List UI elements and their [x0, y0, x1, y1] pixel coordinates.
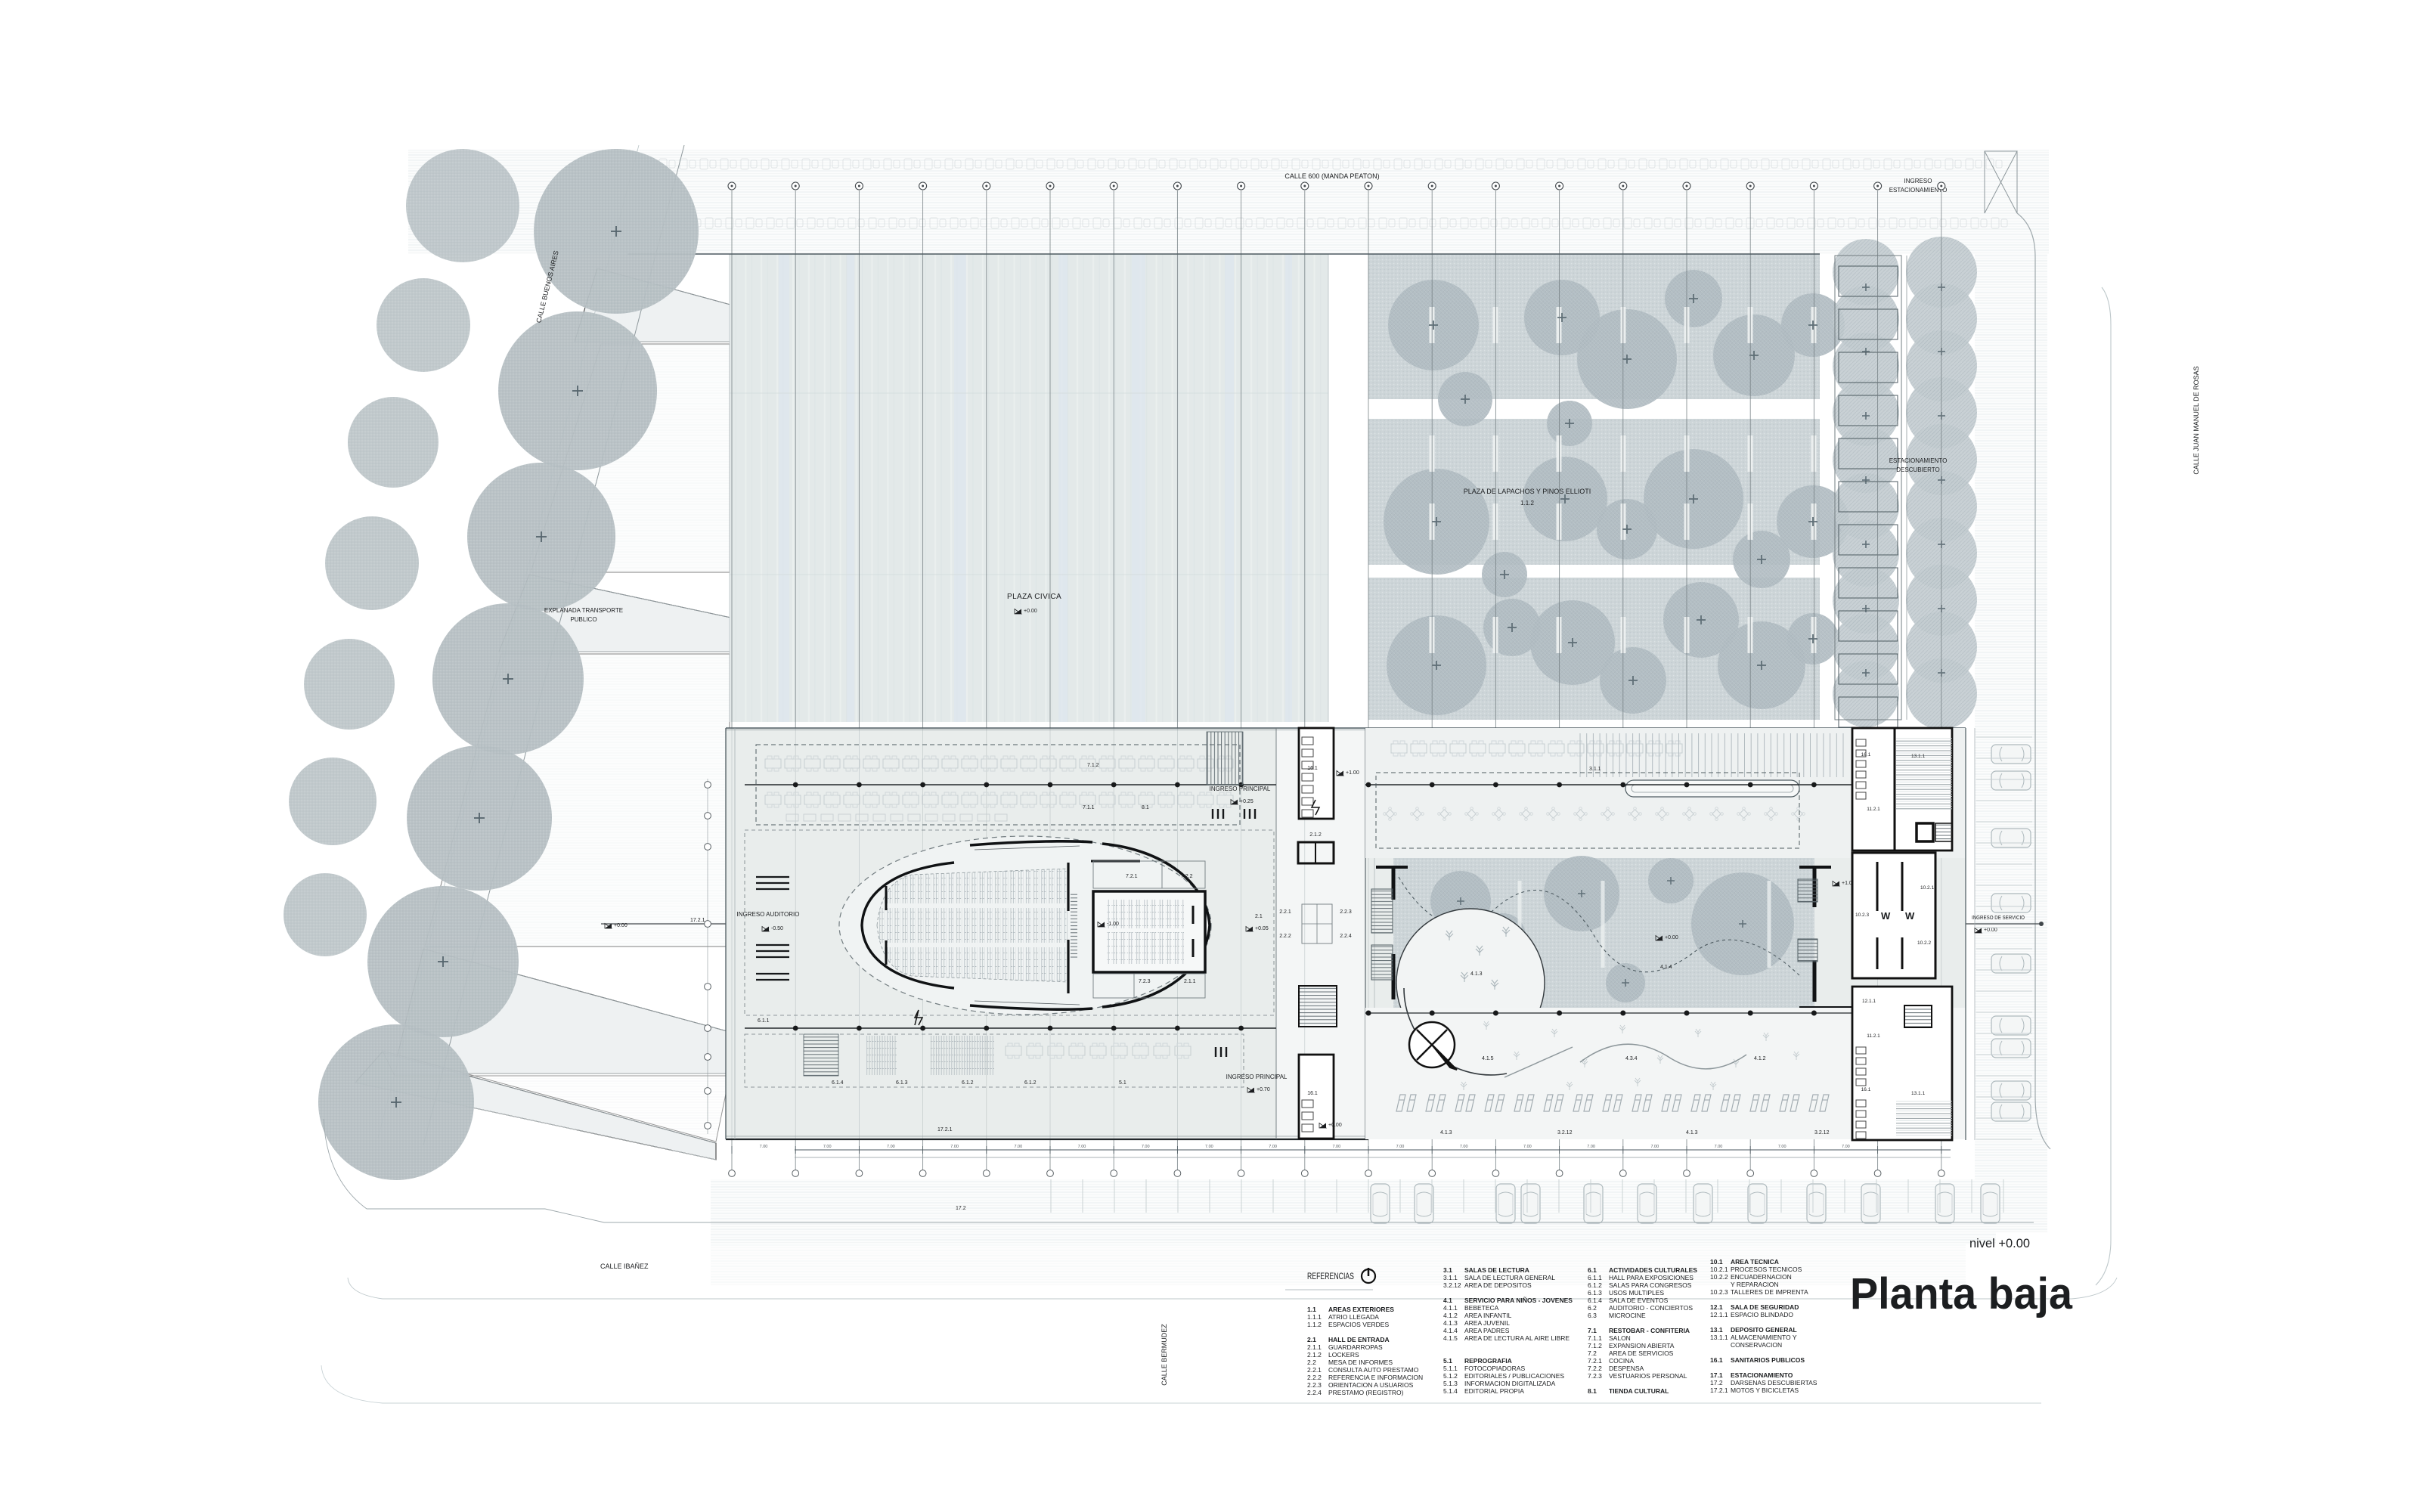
svg-text:16.1: 16.1	[1307, 766, 1318, 771]
svg-text:INGRESO: INGRESO	[1904, 178, 1932, 184]
svg-text:13.1.1: 13.1.1	[1911, 754, 1925, 759]
svg-text:AREAS EXTERIORES: AREAS EXTERIORES	[1328, 1306, 1394, 1313]
svg-text:CONSERVACION: CONSERVACION	[1731, 1341, 1782, 1349]
svg-text:2.1.1: 2.1.1	[1307, 1343, 1322, 1351]
svg-text:4.1.4: 4.1.4	[1660, 965, 1672, 970]
svg-text:6.2: 6.2	[1588, 1304, 1597, 1312]
svg-text:7.00: 7.00	[1142, 1145, 1150, 1149]
svg-text:DEPOSITO GENERAL: DEPOSITO GENERAL	[1731, 1326, 1797, 1334]
svg-text:16.1: 16.1	[1710, 1356, 1723, 1364]
svg-text:ORIENTACION A USUARIOS: ORIENTACION A USUARIOS	[1328, 1381, 1414, 1389]
svg-text:7.2: 7.2	[1588, 1349, 1597, 1357]
svg-text:ESPACIO BLINDADO: ESPACIO BLINDADO	[1731, 1311, 1793, 1318]
svg-text:SANITARIOS PUBLICOS: SANITARIOS PUBLICOS	[1731, 1356, 1805, 1364]
svg-text:4.1.3: 4.1.3	[1443, 1319, 1458, 1327]
svg-text:CALLE JUAN MANUEL DE ROSAS: CALLE JUAN MANUEL DE ROSAS	[2192, 366, 2200, 474]
svg-text:7.00: 7.00	[1078, 1145, 1086, 1149]
svg-text:17.2.1: 17.2.1	[937, 1127, 953, 1132]
svg-text:17.2.1: 17.2.1	[1710, 1387, 1728, 1394]
svg-text:1.1: 1.1	[1307, 1306, 1316, 1313]
svg-text:INGRESO PRINCIPAL: INGRESO PRINCIPAL	[1210, 785, 1271, 792]
svg-text:2.1.2: 2.1.2	[1309, 832, 1322, 838]
svg-text:2.2.4: 2.2.4	[1340, 934, 1352, 939]
svg-text:17.2.1: 17.2.1	[690, 918, 705, 923]
svg-text:+0.00: +0.00	[1024, 609, 1037, 614]
svg-text:7.1.1: 7.1.1	[1588, 1334, 1602, 1342]
svg-text:7.00: 7.00	[1460, 1145, 1468, 1149]
svg-text:1.1.2: 1.1.2	[1307, 1321, 1322, 1328]
svg-text:5.1.3: 5.1.3	[1443, 1380, 1458, 1387]
svg-text:12.1: 12.1	[1710, 1303, 1723, 1311]
svg-text:VESTUARIOS PERSONAL: VESTUARIOS PERSONAL	[1609, 1372, 1687, 1380]
svg-text:SALA DE LECTURA GENERAL: SALA DE LECTURA GENERAL	[1464, 1274, 1555, 1281]
svg-text:10.2.2: 10.2.2	[1917, 940, 1931, 946]
svg-text:5.1.4: 5.1.4	[1443, 1387, 1458, 1395]
svg-text:W: W	[1905, 910, 1915, 922]
svg-text:INGRESO DE SERVICIO: INGRESO DE SERVICIO	[1972, 916, 2025, 921]
svg-text:2.1.2: 2.1.2	[1307, 1351, 1322, 1359]
svg-text:7.1.2: 7.1.2	[1087, 763, 1099, 768]
svg-text:7.00: 7.00	[1523, 1145, 1532, 1149]
svg-text:10.1: 10.1	[1710, 1258, 1723, 1266]
svg-text:7.00: 7.00	[887, 1145, 895, 1149]
svg-text:USOS MULTIPLES: USOS MULTIPLES	[1609, 1289, 1664, 1297]
svg-text:13.1.1: 13.1.1	[1710, 1334, 1728, 1341]
svg-text:DESPENSA: DESPENSA	[1609, 1365, 1644, 1372]
svg-text:EDITORIAL PROPIA: EDITORIAL PROPIA	[1464, 1387, 1524, 1395]
svg-text:17.1: 17.1	[1710, 1371, 1723, 1379]
svg-text:7.2.3: 7.2.3	[1139, 979, 1151, 984]
svg-text:5.1: 5.1	[1119, 1080, 1126, 1086]
svg-text:INGRESO AUDITORIO: INGRESO AUDITORIO	[737, 911, 800, 918]
svg-text:7.00: 7.00	[1332, 1145, 1340, 1149]
svg-text:W: W	[1881, 910, 1891, 922]
svg-text:17.2: 17.2	[1710, 1379, 1723, 1387]
svg-text:ENCUADERNACION: ENCUADERNACION	[1731, 1273, 1792, 1281]
svg-text:4.1.2: 4.1.2	[1754, 1056, 1766, 1061]
svg-text:AUDITORIO - CONCIERTOS: AUDITORIO - CONCIERTOS	[1609, 1304, 1693, 1312]
svg-text:REFERENCIAS: REFERENCIAS	[1307, 1271, 1354, 1281]
svg-text:7.00: 7.00	[760, 1145, 768, 1149]
svg-text:17.2: 17.2	[956, 1206, 966, 1211]
svg-text:AREA JUVENIL: AREA JUVENIL	[1464, 1319, 1510, 1327]
svg-text:1.1.2: 1.1.2	[1520, 500, 1534, 507]
svg-text:3.2.12: 3.2.12	[1443, 1281, 1461, 1289]
svg-text:CALLE BERMUDEZ: CALLE BERMUDEZ	[1161, 1324, 1168, 1386]
svg-text:10.2.3: 10.2.3	[1710, 1288, 1728, 1296]
svg-text:3.1.1: 3.1.1	[1589, 767, 1601, 772]
svg-text:3.2.12: 3.2.12	[1814, 1130, 1830, 1136]
svg-text:MOTOS Y BICICLETAS: MOTOS Y BICICLETAS	[1731, 1387, 1799, 1394]
svg-text:13.1.1: 13.1.1	[1911, 1091, 1925, 1096]
svg-text:16.1: 16.1	[1307, 1091, 1318, 1096]
svg-text:+1.00: +1.00	[1346, 770, 1359, 776]
svg-text:PRESTAMO (REGISTRO): PRESTAMO (REGISTRO)	[1328, 1389, 1404, 1396]
svg-text:6.1.2: 6.1.2	[962, 1080, 974, 1086]
svg-text:4.1.2: 4.1.2	[1443, 1312, 1458, 1319]
svg-text:+0.25: +0.25	[1240, 799, 1253, 804]
svg-text:6.1: 6.1	[1588, 1266, 1597, 1274]
svg-text:AREA DE DEPOSITOS: AREA DE DEPOSITOS	[1464, 1281, 1532, 1289]
svg-text:6.1.3: 6.1.3	[1588, 1289, 1602, 1297]
svg-text:AREA DE LECTURA AL AIRE LIBRE: AREA DE LECTURA AL AIRE LIBRE	[1464, 1334, 1570, 1342]
svg-text:MICROCINE: MICROCINE	[1609, 1312, 1646, 1319]
svg-text:6.1.1: 6.1.1	[1588, 1274, 1602, 1281]
svg-text:COCINA: COCINA	[1609, 1357, 1634, 1365]
svg-text:AREA PADRES: AREA PADRES	[1464, 1327, 1510, 1334]
svg-text:7.1.1: 7.1.1	[1083, 805, 1095, 810]
svg-text:AREA INFANTIL: AREA INFANTIL	[1464, 1312, 1512, 1319]
svg-text:INFORMACION DIGITALIZADA: INFORMACION DIGITALIZADA	[1464, 1380, 1556, 1387]
svg-text:2.1: 2.1	[1255, 914, 1263, 919]
svg-text:MESA DE INFORMES: MESA DE INFORMES	[1328, 1359, 1393, 1366]
svg-text:4.1.5: 4.1.5	[1482, 1056, 1494, 1061]
svg-text:4.1.3: 4.1.3	[1686, 1130, 1698, 1136]
svg-text:ACTIVIDADES CULTURALES: ACTIVIDADES CULTURALES	[1609, 1266, 1697, 1274]
svg-text:HALL PARA EXPOSICIONES: HALL PARA EXPOSICIONES	[1609, 1274, 1694, 1281]
svg-text:7.2.3: 7.2.3	[1588, 1372, 1602, 1380]
svg-text:7.2.2: 7.2.2	[1181, 874, 1193, 879]
svg-text:16.1: 16.1	[1861, 1087, 1871, 1092]
svg-text:6.1.2: 6.1.2	[1588, 1281, 1602, 1289]
svg-text:SALON: SALON	[1609, 1334, 1631, 1342]
svg-text:7.2.1: 7.2.1	[1588, 1357, 1602, 1365]
svg-text:3.1: 3.1	[1443, 1266, 1452, 1274]
svg-text:7.00: 7.00	[950, 1145, 959, 1149]
svg-text:ESTACIONAMIENTO: ESTACIONAMIENTO	[1731, 1371, 1793, 1379]
svg-text:2.1.1: 2.1.1	[1184, 979, 1196, 984]
svg-text:TIENDA CULTURAL: TIENDA CULTURAL	[1609, 1387, 1669, 1395]
svg-text:4.3.4: 4.3.4	[1625, 1056, 1638, 1061]
svg-text:4.1.4: 4.1.4	[1443, 1327, 1458, 1334]
svg-text:2.2.3: 2.2.3	[1307, 1381, 1322, 1389]
svg-text:7.00: 7.00	[1778, 1145, 1786, 1149]
svg-text:6.1.2: 6.1.2	[1024, 1080, 1037, 1086]
svg-text:10.2.1: 10.2.1	[1710, 1266, 1728, 1273]
svg-text:AREA TECNICA: AREA TECNICA	[1731, 1258, 1779, 1266]
svg-text:6.1.3: 6.1.3	[896, 1080, 908, 1086]
svg-text:8.1: 8.1	[1588, 1387, 1597, 1395]
svg-text:AREA DE SERVICIOS: AREA DE SERVICIOS	[1609, 1349, 1674, 1357]
svg-text:10.2.1: 10.2.1	[1920, 885, 1934, 891]
svg-text:2.2.2: 2.2.2	[1307, 1374, 1322, 1381]
svg-text:12.1.1: 12.1.1	[1710, 1311, 1728, 1318]
svg-text:2.2.3: 2.2.3	[1340, 909, 1352, 915]
svg-text:+0.00: +0.00	[1328, 1123, 1342, 1128]
svg-text:SALAS PARA CONGRESOS: SALAS PARA CONGRESOS	[1609, 1281, 1692, 1289]
svg-text:7.00: 7.00	[1715, 1145, 1723, 1149]
svg-text:PLAZA DE LAPACHOS Y PINOS ELLI: PLAZA DE LAPACHOS Y PINOS ELLIOTI	[1464, 488, 1591, 495]
svg-text:2.2.1: 2.2.1	[1279, 909, 1291, 915]
svg-text:EXPANSION ABIERTA: EXPANSION ABIERTA	[1609, 1342, 1675, 1349]
svg-text:Planta baja: Planta baja	[1850, 1269, 2073, 1318]
svg-text:FOTOCOPIADORAS: FOTOCOPIADORAS	[1464, 1365, 1525, 1372]
svg-text:7.00: 7.00	[1650, 1145, 1659, 1149]
svg-text:7.00: 7.00	[1014, 1145, 1022, 1149]
svg-text:3.2.12: 3.2.12	[1557, 1130, 1573, 1136]
svg-text:10.2.3: 10.2.3	[1855, 912, 1869, 918]
svg-text:ALMACENAMIENTO Y: ALMACENAMIENTO Y	[1731, 1334, 1797, 1341]
svg-text:TALLERES DE IMPRENTA: TALLERES DE IMPRENTA	[1731, 1288, 1808, 1296]
svg-text:5.1.1: 5.1.1	[1443, 1365, 1458, 1372]
svg-text:2.2: 2.2	[1307, 1359, 1316, 1366]
svg-text:12.1.1: 12.1.1	[1862, 999, 1876, 1004]
svg-text:PLAZA CIVICA: PLAZA CIVICA	[1007, 593, 1061, 601]
svg-text:CONSULTA AUTO PRESTAMO: CONSULTA AUTO PRESTAMO	[1328, 1366, 1419, 1374]
svg-text:+0.00: +0.00	[1984, 928, 1997, 933]
svg-text:11.2.1: 11.2.1	[1867, 1033, 1880, 1039]
svg-text:EXPLANADA TRANSPORTE: EXPLANADA TRANSPORTE	[544, 607, 623, 614]
svg-text:6.3: 6.3	[1588, 1312, 1597, 1319]
svg-text:+0.05: +0.05	[1255, 926, 1269, 931]
svg-text:+0.00: +0.00	[1665, 935, 1678, 940]
svg-text:7.00: 7.00	[1396, 1145, 1405, 1149]
svg-text:4.1.5: 4.1.5	[1443, 1334, 1458, 1342]
svg-text:SALA DE EVENTOS: SALA DE EVENTOS	[1609, 1297, 1669, 1304]
svg-text:2.2.2: 2.2.2	[1279, 934, 1291, 939]
svg-text:INGRESO PRINCIPAL: INGRESO PRINCIPAL	[1226, 1074, 1288, 1080]
svg-text:6.1.1: 6.1.1	[758, 1018, 770, 1024]
svg-text:7.1.2: 7.1.2	[1588, 1342, 1602, 1349]
svg-text:BEBETECA: BEBETECA	[1464, 1304, 1499, 1312]
svg-text:7.1: 7.1	[1588, 1327, 1597, 1334]
svg-text:7.2.1: 7.2.1	[1126, 874, 1138, 879]
svg-text:LOCKERS: LOCKERS	[1328, 1351, 1359, 1359]
svg-text:8.1: 8.1	[1142, 805, 1149, 810]
svg-text:5.1.2: 5.1.2	[1443, 1372, 1458, 1380]
svg-text:7.00: 7.00	[1842, 1145, 1850, 1149]
svg-text:nivel +0.00: nivel +0.00	[1969, 1236, 2030, 1250]
svg-text:EDITORIALES / PUBLICACIONES: EDITORIALES / PUBLICACIONES	[1464, 1372, 1564, 1380]
svg-text:REPROGRAFIA: REPROGRAFIA	[1464, 1357, 1512, 1365]
svg-text:7.00: 7.00	[823, 1145, 832, 1149]
svg-text:5.1: 5.1	[1443, 1357, 1452, 1365]
svg-text:CALLE 600 (MANDA PEATON): CALLE 600 (MANDA PEATON)	[1284, 172, 1379, 180]
svg-text:4.1.3: 4.1.3	[1470, 971, 1483, 977]
svg-text:10.2.2: 10.2.2	[1710, 1273, 1728, 1281]
svg-text:1.1.1: 1.1.1	[1307, 1313, 1322, 1321]
svg-text:PUBLICO: PUBLICO	[570, 616, 597, 623]
svg-text:SALA DE SEGURIDAD: SALA DE SEGURIDAD	[1731, 1303, 1799, 1311]
svg-text:GUARDARROPAS: GUARDARROPAS	[1328, 1343, 1383, 1351]
svg-text:7.00: 7.00	[1205, 1145, 1213, 1149]
svg-text:-1.00: -1.00	[1107, 922, 1119, 927]
svg-text:ATRIO LLEGADA: ATRIO LLEGADA	[1328, 1313, 1379, 1321]
svg-text:ESTACIONAMIENTO: ESTACIONAMIENTO	[1889, 457, 1948, 464]
svg-text:SERVICIO PARA NIÑOS - JOVENES: SERVICIO PARA NIÑOS - JOVENES	[1464, 1297, 1573, 1304]
svg-text:REFERENCIA E INFORMACION: REFERENCIA E INFORMACION	[1328, 1374, 1423, 1381]
svg-text:ESPACIOS VERDES: ESPACIOS VERDES	[1328, 1321, 1389, 1328]
svg-text:+0.70: +0.70	[1257, 1087, 1270, 1092]
svg-text:DARSENAS DESCUBIERTAS: DARSENAS DESCUBIERTAS	[1731, 1379, 1817, 1387]
svg-text:2.1: 2.1	[1307, 1336, 1316, 1343]
svg-text:DESCUBIERTO: DESCUBIERTO	[1896, 466, 1940, 473]
svg-text:-0.50: -0.50	[771, 926, 783, 931]
svg-text:6.1.4: 6.1.4	[832, 1080, 844, 1086]
svg-text:4.1.3: 4.1.3	[1440, 1130, 1452, 1136]
svg-text:7.00: 7.00	[1587, 1145, 1595, 1149]
svg-text:3.1.1: 3.1.1	[1443, 1274, 1458, 1281]
svg-text:4.1: 4.1	[1443, 1297, 1452, 1304]
svg-text:2.2.1: 2.2.1	[1307, 1366, 1322, 1374]
svg-text:2.2.4: 2.2.4	[1307, 1389, 1322, 1396]
svg-text:HALL DE ENTRADA: HALL DE ENTRADA	[1328, 1336, 1390, 1343]
svg-text:4.1.1: 4.1.1	[1443, 1304, 1458, 1312]
svg-text:7.2.2: 7.2.2	[1588, 1365, 1602, 1372]
svg-text:RESTOBAR - CONFITERIA: RESTOBAR - CONFITERIA	[1609, 1327, 1690, 1334]
svg-text:11.2.1: 11.2.1	[1867, 807, 1880, 812]
svg-text:Y REPARACION: Y REPARACION	[1731, 1281, 1778, 1288]
svg-text:SALAS DE LECTURA: SALAS DE LECTURA	[1464, 1266, 1529, 1274]
svg-text:7.00: 7.00	[1269, 1145, 1277, 1149]
svg-text:6.1.4: 6.1.4	[1588, 1297, 1602, 1304]
svg-text:PROCESOS TECNICOS: PROCESOS TECNICOS	[1731, 1266, 1802, 1273]
svg-text:CALLE IBAÑEZ: CALLE IBAÑEZ	[600, 1263, 649, 1270]
svg-text:+0.00: +0.00	[614, 923, 628, 928]
svg-text:13.1: 13.1	[1710, 1326, 1723, 1334]
